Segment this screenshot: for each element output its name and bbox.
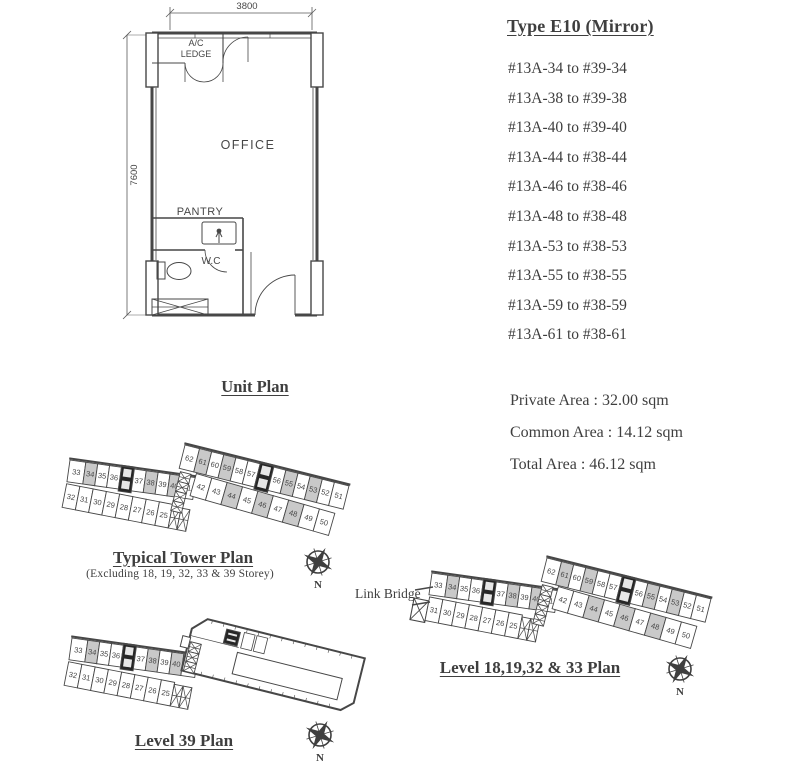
room-label-wc: W.C (194, 256, 228, 267)
unit-cell-number: 32 (68, 670, 78, 680)
level-39-plan-title: Level 39 Plan (104, 731, 264, 751)
unit-cell-number: 40 (172, 659, 182, 669)
lift-core-block (223, 629, 240, 646)
unit-cell-number: 29 (455, 610, 465, 620)
unit-cell-number: 36 (471, 585, 481, 595)
unit-cell-number: 38 (146, 478, 156, 488)
unit-cell-number: 32 (66, 492, 76, 502)
unit-cell-number: 33 (434, 580, 444, 590)
unit-cell-number: 39 (160, 657, 170, 667)
floor-plan-page: { "page": { "bg": "#ffffff", "ink": "#47… (0, 0, 787, 768)
unit-cell-number: 31 (79, 494, 89, 504)
unit-cell-number: 30 (95, 675, 105, 685)
unit-cell-number: 39 (520, 592, 530, 602)
unit-range-item: #13A-59 to #38-59 (508, 297, 627, 315)
unit-cell-number: 38 (508, 591, 518, 601)
compass-icon (300, 545, 336, 581)
unit-cell-number: 26 (146, 507, 156, 517)
area-summary: Private Area : 32.00 sqm Common Area : 1… (510, 392, 683, 488)
compass-n-label: N (302, 752, 338, 764)
area-common: Common Area : 14.12 sqm (510, 424, 683, 442)
compass-level39: N (302, 718, 338, 764)
unit-plan-title: Unit Plan (200, 377, 310, 397)
typical-tower-plan-drawing: 3334353637383940413231302928272625626160… (40, 428, 370, 550)
unit-range-item: #13A-38 to #39-38 (508, 90, 627, 108)
unit-cell-number: 39 (158, 479, 168, 489)
level-18-plan-drawing: 3334353637383940413130292827262562616059… (400, 543, 745, 658)
unit-cell-number: 29 (106, 500, 116, 510)
unit-cell-number: 26 (148, 685, 158, 695)
typical-tower-plan-subtitle: (Excluding 18, 19, 32, 33 & 39 Storey) (80, 568, 280, 580)
unit-cell-number: 30 (442, 608, 452, 618)
unit-cell-number: 25 (508, 620, 518, 630)
compass-icon (302, 718, 338, 754)
level-18-plan-title: Level 18,19,32 & 33 Plan (430, 658, 630, 678)
unit-cell-number: 33 (72, 467, 82, 477)
unit-cell-number: 29 (108, 678, 118, 688)
unit-cell-number: 25 (161, 688, 171, 698)
unit-cell-number: 31 (81, 672, 91, 682)
unit-range-list: #13A-34 to #39-34#13A-38 to #39-38#13A-4… (508, 60, 627, 356)
compass-typical: N (300, 545, 336, 591)
unit-range-item: #13A-53 to #38-53 (508, 238, 627, 256)
unit-range-item: #13A-55 to #38-55 (508, 267, 627, 285)
unit-range-item: #13A-61 to #38-61 (508, 326, 627, 344)
room-label-ac-ledge: A/C LEDGE (168, 38, 224, 60)
unit-cell-number: 30 (93, 497, 103, 507)
area-total: Total Area : 46.12 sqm (510, 456, 683, 474)
unit-cell-number: 27 (482, 615, 492, 625)
typical-tower-plan-title: Typical Tower Plan (93, 548, 273, 568)
unit-cell-number: 27 (132, 505, 142, 515)
unit-range-item: #13A-46 to #38-46 (508, 178, 627, 196)
room-label-pantry: PANTRY (172, 206, 228, 218)
level-39-plan-drawing: 3334353637383940413231302928272625 (40, 600, 375, 732)
unit-cell-number: 33 (74, 645, 84, 655)
room-label-office: OFFICE (218, 138, 278, 152)
unit-cell-number: 35 (99, 649, 109, 659)
unit-cell-number: 26 (495, 618, 505, 628)
unit-cell-number: 34 (87, 647, 97, 657)
compass-level18: N (662, 652, 698, 698)
unit-range-item: #13A-34 to #39-34 (508, 60, 627, 78)
dim-height-label: 7600 (129, 160, 140, 190)
unit-cell-number: 28 (469, 613, 479, 623)
compass-icon (662, 652, 698, 688)
unit-cell-number: 37 (496, 589, 506, 599)
unit-cell-number: 35 (97, 471, 107, 481)
unit-range-item: #13A-48 to #38-48 (508, 208, 627, 226)
unit-cell-number: 25 (159, 510, 169, 520)
compass-n-label: N (662, 686, 698, 698)
unit-cell-number: 36 (109, 472, 119, 482)
link-bridge-label: Link Bridge (355, 586, 421, 602)
type-title: Type E10 (Mirror) (507, 16, 654, 37)
unit-cell-number: 37 (134, 476, 144, 486)
unit-cell-number: 27 (134, 683, 144, 693)
unit-range-item: #13A-44 to #38-44 (508, 149, 627, 167)
unit-cell-number: 34 (447, 582, 457, 592)
unit-cell-number: 28 (119, 502, 129, 512)
unit-cell-number: 37 (136, 654, 146, 664)
dim-width-label: 3800 (222, 1, 272, 12)
unit-range-item: #13A-40 to #39-40 (508, 119, 627, 137)
unit-cell-number: 36 (111, 650, 121, 660)
unit-cell-number: 38 (148, 656, 158, 666)
unit-cell-number: 34 (85, 469, 95, 479)
area-private: Private Area : 32.00 sqm (510, 392, 683, 410)
unit-cell-number: 35 (459, 584, 469, 594)
unit-cell-number: 28 (121, 680, 131, 690)
unit-cell-number: 31 (429, 605, 439, 615)
compass-n-label: N (300, 579, 336, 591)
